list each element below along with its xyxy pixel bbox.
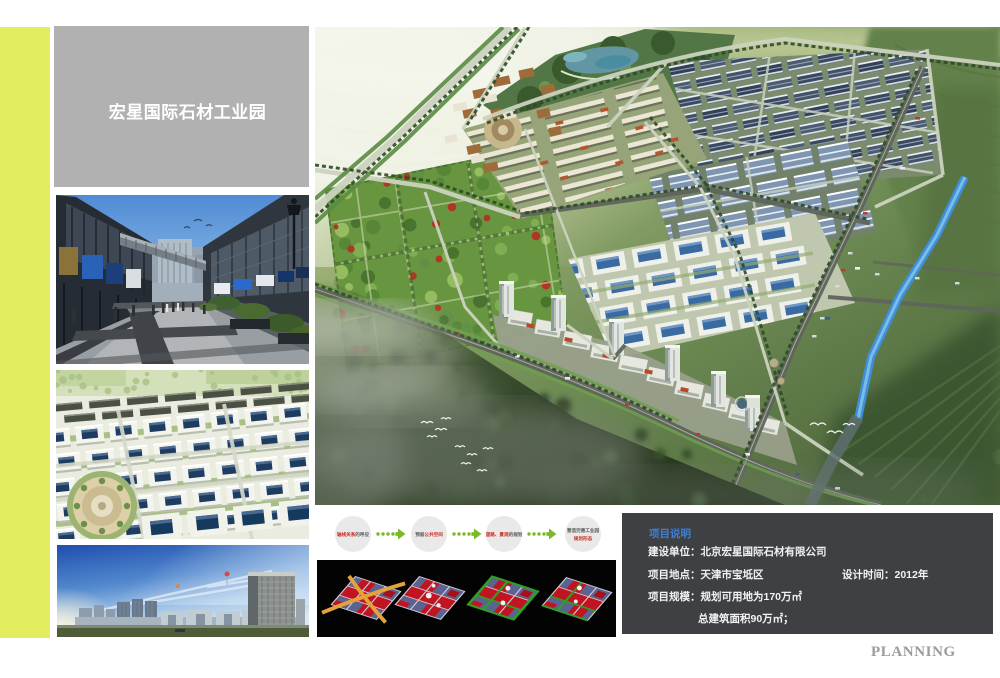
svg-text:道路、景观的规划: 道路、景观的规划 — [486, 531, 523, 538]
svg-text:轴线关系的呼应: 轴线关系的呼应 — [337, 531, 370, 538]
svg-text:预留公共空间: 预留公共空间 — [415, 531, 443, 538]
svg-text:规划形态: 规划形态 — [574, 535, 593, 542]
svg-text:营造完善工业园: 营造完善工业园 — [567, 527, 600, 534]
